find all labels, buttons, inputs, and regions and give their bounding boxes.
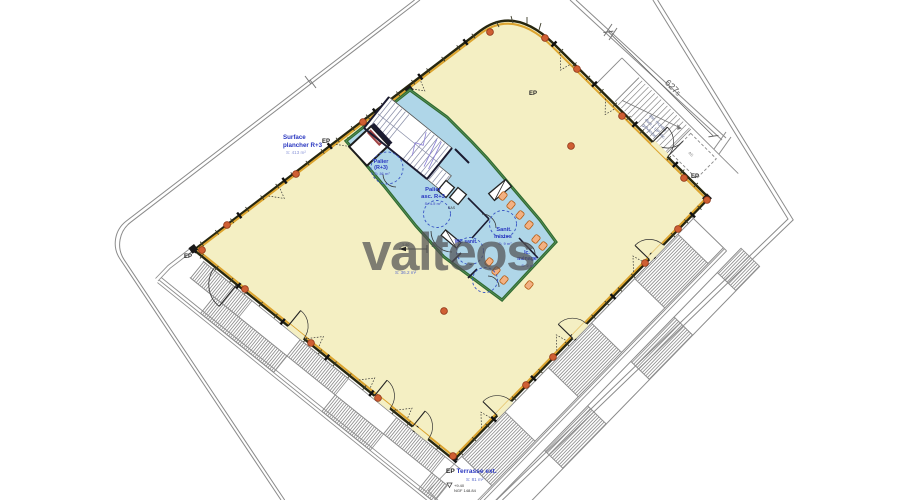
svg-text:valteos: valteos — [362, 223, 534, 282]
svg-text:S: 36 m²: S: 36 m² — [374, 171, 390, 176]
svg-text:NGF 148.84: NGF 148.84 — [454, 488, 477, 493]
svg-text:plancher R+3: plancher R+3 — [283, 142, 323, 149]
svg-text:asc. R+3: asc. R+3 — [421, 194, 445, 200]
svg-text:Surface: Surface — [283, 134, 306, 141]
svg-text:EP: EP — [184, 254, 192, 260]
svg-text:S: 81 m²: S: 81 m² — [466, 477, 484, 482]
svg-text:S: 413 m²: S: 413 m² — [286, 150, 306, 155]
svg-text:EAS: EAS — [448, 206, 456, 210]
svg-text:EP: EP — [691, 174, 699, 180]
svg-text:EP: EP — [322, 139, 330, 145]
svg-text:S: 4.5 m²: S: 4.5 m² — [425, 201, 442, 206]
svg-text:EP: EP — [529, 91, 537, 97]
svg-text:EP Terrasse ext.: EP Terrasse ext. — [446, 468, 497, 475]
svg-text:Palier: Palier — [425, 187, 442, 193]
